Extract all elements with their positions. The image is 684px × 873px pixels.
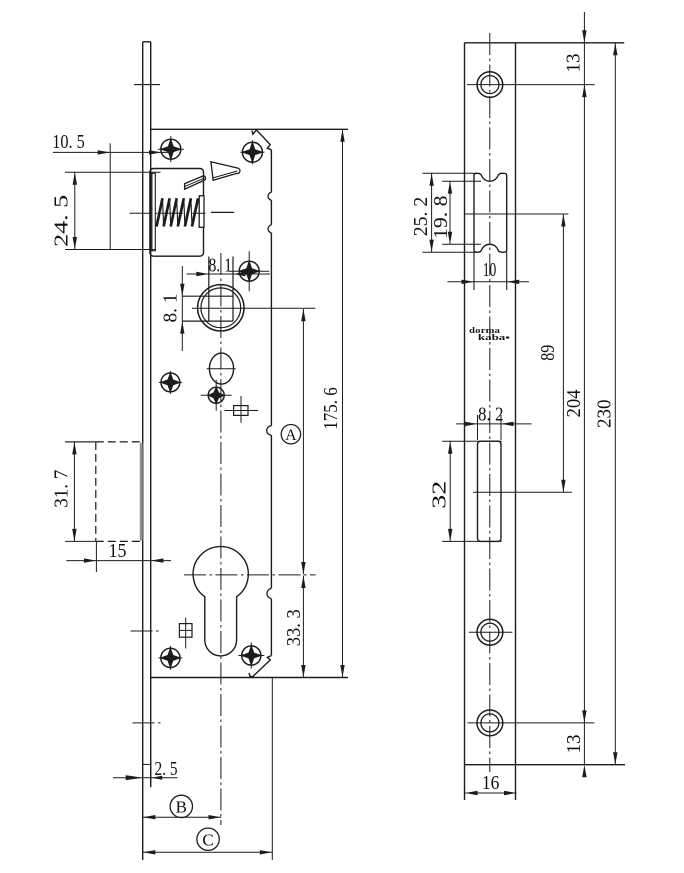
svg-text:8. 2: 8. 2 [478,404,504,426]
svg-text:C: C [202,830,213,849]
svg-text:2. 5: 2. 5 [155,758,178,780]
svg-text:16: 16 [482,772,500,794]
svg-text:24. 5: 24. 5 [50,195,72,247]
svg-text:15: 15 [109,540,127,562]
svg-text:19. 8: 19. 8 [430,195,452,239]
svg-text:kaba▪: kaba▪ [478,333,510,342]
svg-text:10: 10 [483,259,497,281]
svg-text:13: 13 [563,54,585,73]
svg-text:B: B [176,798,187,817]
svg-text:33. 3: 33. 3 [283,609,305,646]
svg-text:10. 5: 10. 5 [52,131,85,153]
svg-text:230: 230 [594,399,616,428]
svg-text:175. 6: 175. 6 [320,387,342,430]
svg-text:8. 1: 8. 1 [208,255,232,277]
svg-text:13: 13 [563,735,585,754]
svg-text:89: 89 [537,345,559,361]
svg-text:32: 32 [429,481,451,509]
svg-text:8. 1: 8. 1 [160,294,182,323]
svg-text:204: 204 [563,390,585,418]
svg-text:25. 2: 25. 2 [410,197,432,237]
svg-text:A: A [285,427,297,444]
svg-text:31. 7: 31. 7 [51,470,73,508]
